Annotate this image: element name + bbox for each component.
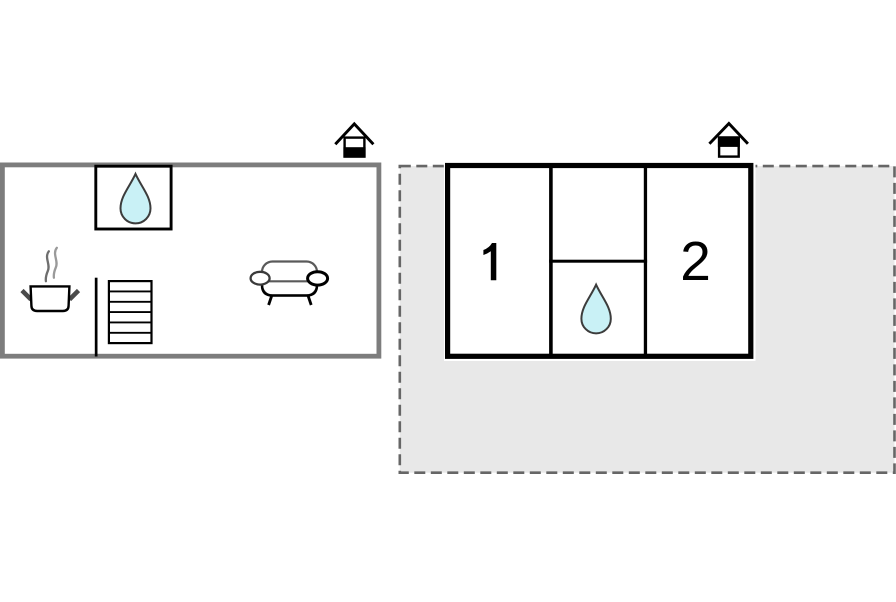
svg-text:2: 2: [680, 230, 711, 292]
